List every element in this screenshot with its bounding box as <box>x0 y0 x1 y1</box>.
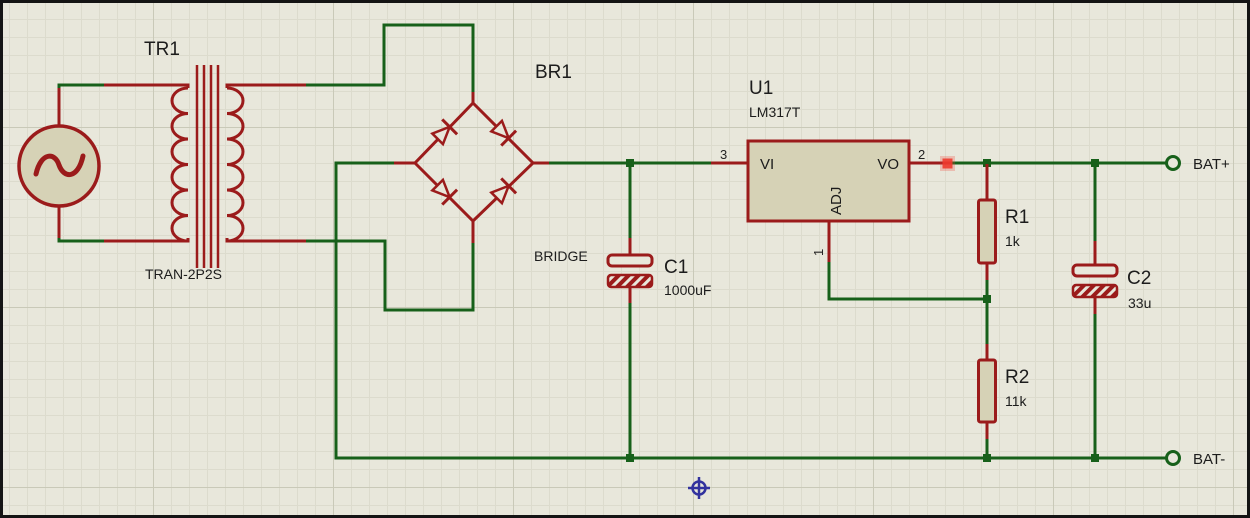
bat-plus-label: BAT+ <box>1193 156 1230 173</box>
u1-vi-label: VI <box>760 156 774 173</box>
c1-value-label: 1000uF <box>664 282 711 298</box>
pin-highlight-dot <box>940 156 955 171</box>
resistor-r2-component[interactable]: R2 11k <box>979 344 1030 439</box>
u1-pin-number-3: 3 <box>720 147 727 162</box>
u1-pin-number-1: 1 <box>811 249 826 256</box>
bat-minus-label: BAT- <box>1193 451 1225 468</box>
transformer-value-label: TRAN-2P2S <box>145 266 222 282</box>
transformer-pin-secondary-top <box>227 85 306 88</box>
origin-marker-icon <box>688 477 710 499</box>
schematic: TR1 TRAN-2P2S BR1 BRIDGE <box>3 3 1247 515</box>
regulator-u1-component[interactable]: VI VO ADJ 3 2 1 U1 LM317T <box>711 78 951 262</box>
resistor-r1-component[interactable]: R1 1k <box>979 164 1030 280</box>
r1-ref-label: R1 <box>1005 207 1029 228</box>
wire-adj-feedback[interactable] <box>829 262 989 299</box>
c2-ref-label: C2 <box>1127 268 1151 289</box>
u1-ref-label: U1 <box>749 78 773 99</box>
transformer-core <box>197 65 218 268</box>
c2-plate-positive <box>1073 265 1117 276</box>
junction-dot <box>626 454 634 462</box>
wire-transformer-to-bridge-top[interactable] <box>306 25 473 92</box>
bridge-diamond <box>415 103 533 221</box>
secondary-winding <box>227 88 243 241</box>
r2-value-label: 11k <box>1005 393 1028 409</box>
junction-dot <box>983 295 991 303</box>
r2-body <box>979 360 996 422</box>
u1-adj-label: ADJ <box>828 187 845 215</box>
u1-vo-label: VO <box>877 156 899 173</box>
transformer-pin-primary-top <box>104 85 188 88</box>
junction-dot <box>626 159 634 167</box>
terminal-circle-icon <box>1167 452 1180 465</box>
u1-value-label: LM317T <box>749 104 801 120</box>
schematic-canvas[interactable]: TR1 TRAN-2P2S BR1 BRIDGE <box>0 0 1250 518</box>
junction-dot <box>1091 159 1099 167</box>
r2-ref-label: R2 <box>1005 367 1029 388</box>
c2-plate-negative <box>1073 285 1117 297</box>
c1-plate-negative <box>608 275 652 287</box>
primary-winding <box>172 88 188 241</box>
capacitor-c1-component[interactable]: C1 1000uF <box>608 238 711 303</box>
transformer-ref-label: TR1 <box>144 39 180 60</box>
c2-value-label: 33u <box>1128 295 1151 311</box>
r1-body <box>979 200 996 263</box>
transformer-component[interactable]: TR1 TRAN-2P2S <box>104 39 306 282</box>
u1-pin-number-2: 2 <box>918 147 925 162</box>
wire-transformer-to-bridge-bottom[interactable] <box>306 241 473 310</box>
c1-ref-label: C1 <box>664 257 688 278</box>
terminal-bat-minus[interactable]: BAT- <box>1167 451 1226 468</box>
terminal-bat-plus[interactable]: BAT+ <box>1167 156 1231 173</box>
bridge-ref-label: BR1 <box>535 62 572 83</box>
bridge-value-label: BRIDGE <box>534 248 588 264</box>
c1-plate-positive <box>608 255 652 266</box>
wire-source-bottom[interactable] <box>59 238 104 241</box>
wires <box>59 25 1166 458</box>
terminal-circle-icon <box>1167 157 1180 170</box>
r1-value-label: 1k <box>1005 233 1021 249</box>
ac-source-component[interactable] <box>19 88 99 238</box>
wire-source-top[interactable] <box>59 85 104 88</box>
junction-dot <box>1091 454 1099 462</box>
capacitor-c2-component[interactable]: C2 33u <box>1073 241 1151 314</box>
transformer-pin-primary-bottom <box>104 238 188 241</box>
junction-dot <box>983 454 991 462</box>
